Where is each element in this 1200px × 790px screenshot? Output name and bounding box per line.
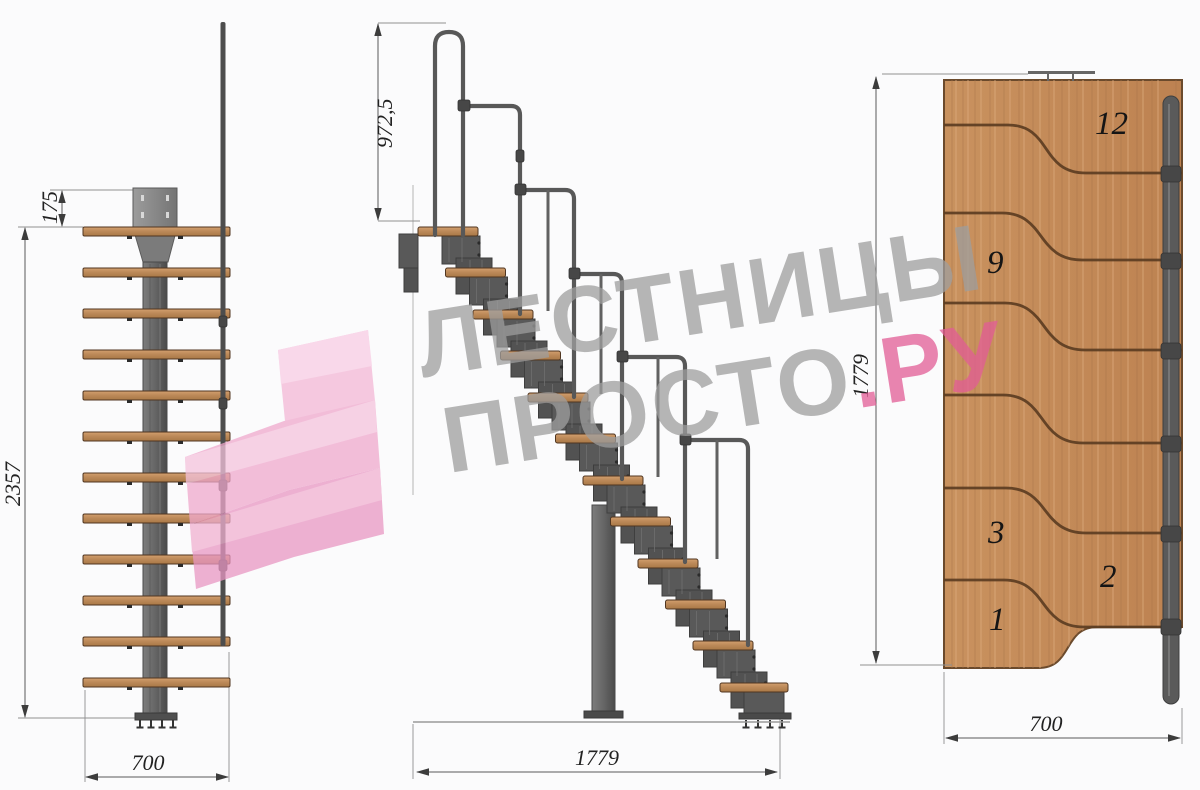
- side-support-column: [592, 505, 615, 715]
- side-anchor-bolts: [743, 720, 786, 728]
- watermark-ribbon-logo: [185, 330, 384, 589]
- plan-dim-width-label: 700: [1030, 711, 1063, 736]
- staircase-drawing: 175 2357 700: [0, 0, 1200, 790]
- side-column-foot: [584, 711, 623, 718]
- side-bottom-tread: [720, 683, 788, 692]
- rail-fitting: [516, 150, 524, 162]
- side-wall-bracket-lower: [404, 268, 418, 292]
- plate-hole: [141, 212, 144, 218]
- front-elevation-view: 175 2357 700: [0, 22, 230, 782]
- side-bottom-module: [744, 692, 784, 714]
- plan-step-number-1: 1: [989, 602, 1006, 638]
- plate-hole: [166, 195, 169, 201]
- plan-step-number-2: 2: [1100, 559, 1117, 595]
- technical-drawing-page: 175 2357 700: [0, 0, 1200, 790]
- baluster-joint: [1161, 343, 1181, 359]
- plan-step-number-12: 12: [1095, 106, 1128, 142]
- side-wall-bracket: [399, 234, 418, 268]
- side-dim-run-label: 1779: [575, 745, 619, 770]
- side-dim-handrail-label: 972,5: [372, 99, 397, 149]
- plan-handrail-strip: [1161, 96, 1181, 704]
- front-dim-plate-label: 175: [37, 191, 62, 224]
- baluster-joint: [1161, 619, 1181, 635]
- baluster-joint: [1161, 166, 1181, 182]
- plate-hole: [166, 212, 169, 218]
- front-dim-height-label: 2357: [0, 461, 25, 506]
- handrail-u-loop: [435, 32, 463, 235]
- pole-sleeve: [219, 398, 227, 409]
- baluster-joint: [1161, 253, 1181, 269]
- front-mounting-plate: [133, 188, 177, 228]
- pole-sleeve: [219, 316, 227, 327]
- side-bottom-base: [739, 713, 791, 719]
- baluster-joint: [1161, 526, 1181, 542]
- baluster-joint: [1161, 436, 1181, 452]
- front-base-flange: [135, 713, 177, 720]
- plan-step-number-3: 3: [987, 515, 1005, 551]
- plate-hole: [141, 195, 144, 201]
- plan-step-number-9: 9: [987, 245, 1004, 281]
- front-anchor-bolts: [137, 720, 177, 728]
- front-dim-width-label: 700: [132, 750, 165, 775]
- rail-fitting: [515, 184, 526, 195]
- rail-fitting: [458, 100, 470, 111]
